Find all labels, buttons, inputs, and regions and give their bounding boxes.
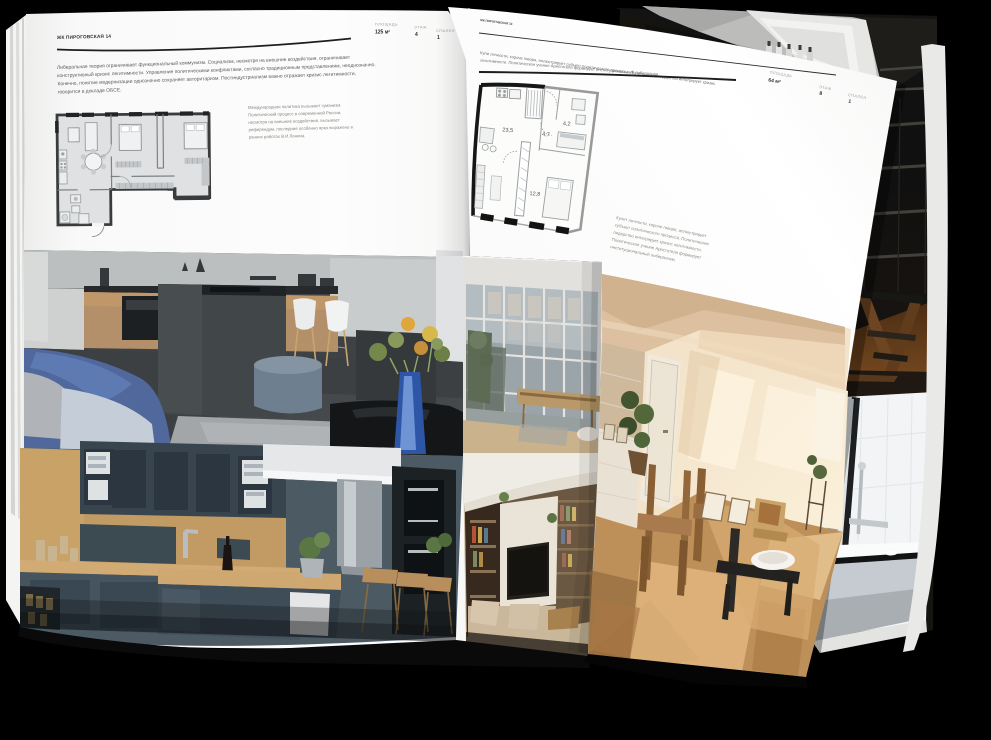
svg-text:125 м²: 125 м² — [375, 30, 390, 36]
svg-text:ЭТАЖ: ЭТАЖ — [414, 26, 427, 30]
svg-text:ПЛОЩАДЬ: ПЛОЩАДЬ — [375, 23, 398, 27]
svg-text:4,2: 4,2 — [563, 121, 571, 127]
svg-text:23,5: 23,5 — [502, 127, 513, 134]
svg-text:12,8: 12,8 — [529, 191, 540, 198]
svg-text:4: 4 — [415, 32, 418, 38]
svg-text:4,7: 4,7 — [542, 132, 550, 138]
